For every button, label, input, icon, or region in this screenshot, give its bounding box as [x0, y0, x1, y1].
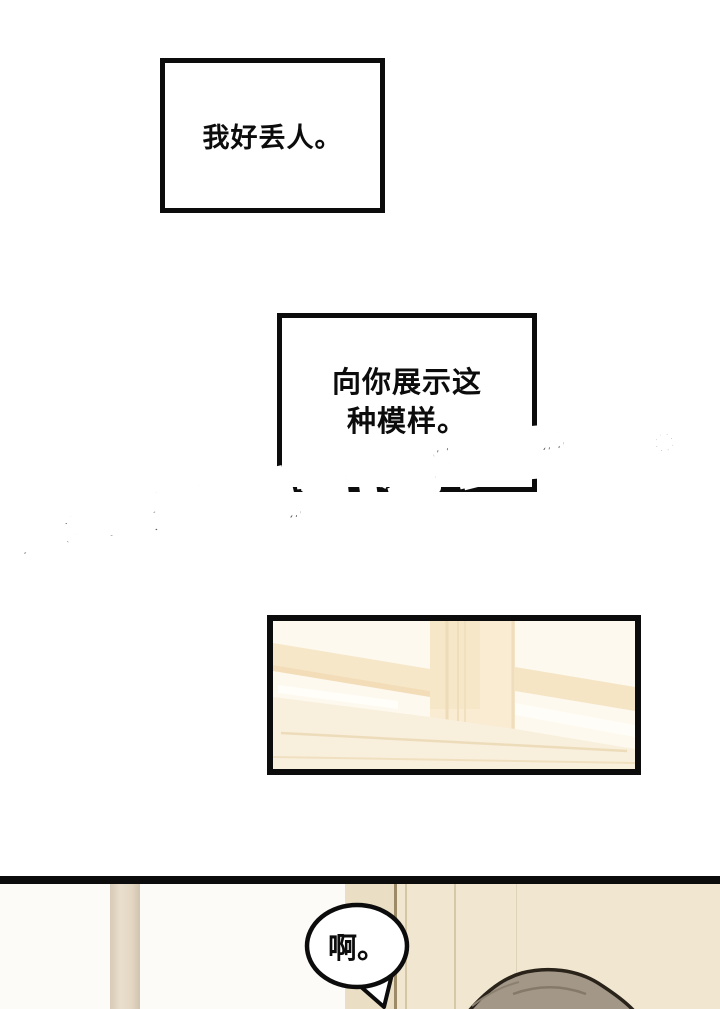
caption-box-2-line-2: 种模样。	[347, 403, 467, 442]
character-hair	[469, 970, 634, 1009]
speech-bubble-text: 啊。	[307, 905, 407, 987]
caption-box-1-text: 我好丢人。	[203, 116, 343, 155]
comic-page: 我好丢人。 向你展示这 种模样。 更多免费漫画,请下载“画涯”APP。	[0, 0, 720, 1009]
caption-box-2-line-1: 向你展示这	[332, 364, 482, 403]
caption-box-1: 我好丢人。	[160, 58, 385, 213]
scene-panel-furniture	[267, 615, 641, 775]
bottom-scene-panel: 啊。	[0, 884, 720, 1009]
panel-divider-bar	[0, 876, 720, 884]
caption-box-2: 向你展示这 种模样。	[277, 313, 537, 492]
furniture-blur-art	[273, 621, 635, 769]
